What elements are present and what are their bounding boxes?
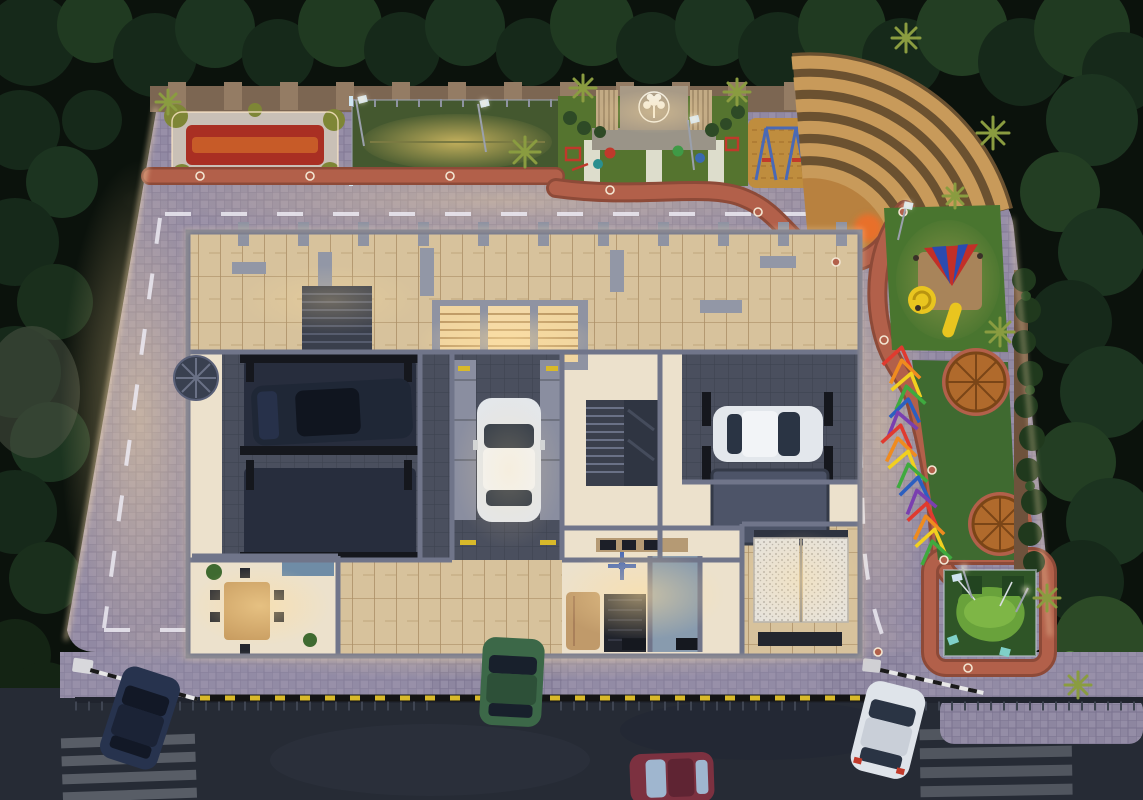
rattan-gazebo-1 — [942, 348, 1010, 416]
spiral-staircase — [174, 356, 218, 400]
parked-car-dark-left — [251, 378, 414, 446]
building — [174, 222, 862, 658]
stack-pallet — [244, 468, 416, 560]
flower-bed-orange — [192, 137, 318, 153]
parked-car-white-right — [713, 406, 823, 462]
sidewalk-apron-right — [940, 696, 1143, 744]
appliances — [600, 540, 662, 550]
putting-green — [944, 570, 1036, 657]
feature-wall — [596, 86, 712, 134]
screenshot-root — [0, 0, 1143, 800]
door-mat — [676, 638, 700, 650]
car-sedan-maroon — [629, 752, 715, 800]
central-staircase — [586, 400, 660, 486]
central-car-bay — [452, 352, 564, 560]
site-plan-render — [0, 0, 1143, 800]
spiral-slide — [908, 286, 936, 314]
stage-lawn — [558, 86, 748, 186]
kids-playground — [884, 205, 1008, 352]
wardrobe — [758, 632, 842, 646]
car-sedan-green — [479, 636, 546, 727]
